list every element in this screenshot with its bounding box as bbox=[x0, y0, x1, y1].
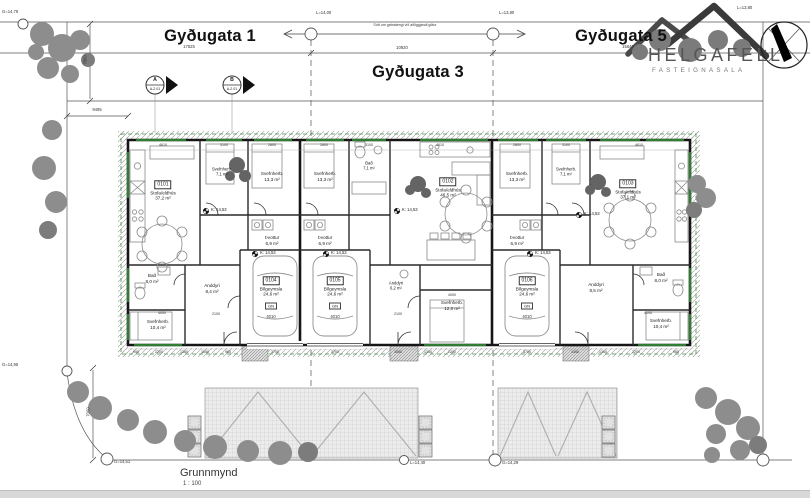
floor-plan-sheet: Gyðugata 1 Gyðugata 3 Gyðugata 5 17525 1… bbox=[0, 0, 810, 498]
level-u3: K: 14,53 bbox=[584, 212, 600, 217]
plan-title: Grunnmynd bbox=[180, 467, 237, 479]
tree-top-left bbox=[28, 22, 95, 83]
room-u1-entry: Anddyri8,4 m² bbox=[204, 283, 220, 295]
marker-bottom1: G=14,51 bbox=[114, 460, 130, 465]
logo-fasteignasala: FASTEIGNASALA bbox=[652, 68, 745, 75]
dim-bottom-8: 1360 bbox=[424, 351, 432, 355]
marker-top-left: G=14,79 bbox=[2, 10, 18, 15]
marker-bottom3: G=14,29 bbox=[502, 461, 518, 466]
dim-top-7: 3100 bbox=[562, 144, 570, 148]
street-title-gydugata-5: Gyðugata 5 bbox=[575, 27, 667, 45]
dim-bottom-0: 950 bbox=[133, 351, 139, 355]
garage-3-door-dim: 4010 bbox=[522, 315, 531, 320]
dim-bottom-10: 3700 bbox=[523, 351, 531, 355]
marker-top-right: L=13,80 bbox=[737, 6, 752, 11]
level-u1: K: 14,53 bbox=[211, 208, 227, 213]
logo-helgafell: HELGAFELL bbox=[648, 46, 784, 66]
dim-top-5: 4610 bbox=[436, 144, 444, 148]
dim-room-2: 2100 bbox=[394, 313, 402, 317]
garage-2-gn: GN bbox=[329, 303, 341, 310]
garage-3-gn: GN bbox=[521, 303, 533, 310]
dim-top-8: 4610 bbox=[635, 144, 643, 148]
room-u3-entry: Anddyri8,5 m² bbox=[588, 282, 604, 294]
garage-2-label: 0105 Bílgeymsla24,6 m² bbox=[324, 276, 346, 297]
dim-bottom-7: 1650 bbox=[394, 351, 402, 355]
marker-street1: L=14,00 bbox=[316, 11, 331, 16]
section-a-letter: A bbox=[153, 78, 157, 84]
room-u3-bed-large: Svefnherb.13,3 m² bbox=[506, 171, 528, 183]
garage-3-label: 0106 Bílgeymsla24,6 m² bbox=[516, 276, 538, 297]
dim-top-1: 3100 bbox=[220, 144, 228, 148]
room-u1-living: 0101 Stofa/eldhús37,2 m² bbox=[150, 180, 176, 201]
dim-top-6: 2800 bbox=[513, 144, 521, 148]
dim-top-2: 2800 bbox=[268, 144, 276, 148]
dim-room-3: 4000 bbox=[448, 294, 456, 298]
street-title-gydugata-3: Gyðugata 3 bbox=[372, 63, 464, 81]
room-u1-bed-small: Svefnherb.7,1 m² bbox=[212, 167, 232, 178]
street3-dim: 10920 bbox=[396, 46, 408, 51]
driveways bbox=[205, 388, 617, 458]
room-u2-laundry: Þvottur6,9 m² bbox=[318, 235, 333, 247]
room-u1-bed-lower: Svefnherb.10,4 m² bbox=[147, 319, 169, 331]
dim-top-0: 4610 bbox=[159, 144, 167, 148]
dim-bottom-6: 3700 bbox=[331, 351, 339, 355]
dim-bottom-1: 2200 bbox=[155, 351, 163, 355]
marker-left: G=14,95 bbox=[2, 363, 18, 368]
garage-2-door-dim: 4010 bbox=[330, 315, 339, 320]
room-u1-bath: Bað8,0 m² bbox=[145, 273, 158, 285]
section-a-sheet: A-2.01 bbox=[150, 88, 161, 92]
section-b-letter: B bbox=[230, 78, 234, 84]
tree-left-mid bbox=[32, 120, 67, 239]
dim-bottom-12: 1360 bbox=[599, 351, 607, 355]
room-u1-bed-large: Svefnherb.13,3 m² bbox=[261, 171, 283, 183]
section-markers bbox=[146, 76, 255, 133]
garage-1-door-dim: 4010 bbox=[266, 315, 275, 320]
room-u3-bed-small: Svefnherb.7,1 m² bbox=[556, 167, 576, 178]
site-dim-7800: 7800 bbox=[84, 55, 89, 64]
unit2-id-badge: 0102 bbox=[439, 177, 456, 186]
level-u2: K: 14,53 bbox=[402, 208, 418, 213]
room-u2-bed-large: Svefnherb.13,3 m² bbox=[314, 171, 336, 183]
marker-bottom2: L=14,40 bbox=[410, 461, 425, 466]
plan-scale: 1 : 100 bbox=[183, 481, 201, 488]
level-g2: K: 14,53 bbox=[331, 251, 347, 256]
room-u3-living: 0103 Stofa/eldhús37,1 m² bbox=[615, 179, 641, 200]
dim-bottom-13: 2200 bbox=[632, 351, 640, 355]
dim-room-0: 4000 bbox=[158, 312, 166, 316]
dim-top-3: 2800 bbox=[320, 144, 328, 148]
dim-bottom-5: 3700 bbox=[271, 351, 279, 355]
dim-bottom-9: 2200 bbox=[448, 351, 456, 355]
unit3-id-badge: 0103 bbox=[619, 179, 636, 188]
section-b-sheet: A-2.01 bbox=[227, 88, 238, 92]
level-g1: K: 14,53 bbox=[260, 251, 276, 256]
room-u3-laundry: Þvottur6,9 m² bbox=[510, 235, 525, 247]
bottom-strip bbox=[0, 491, 810, 498]
dim-bottom-2: 1360 bbox=[180, 351, 188, 355]
room-u2-bed-lower: Svefnherb.12,0 m² bbox=[441, 300, 463, 312]
room-u3-bath: Bað8,0 m² bbox=[654, 272, 667, 284]
level-g3: K: 14,53 bbox=[535, 251, 551, 256]
street5-dim: 15640 bbox=[622, 45, 634, 50]
dim-room-1: 2100 bbox=[212, 313, 220, 317]
site-dim-9495: 9495 bbox=[92, 108, 101, 113]
dim-bottom-11: 1450 bbox=[571, 351, 579, 355]
dim-bottom-14: 950 bbox=[673, 351, 679, 355]
site-dim-7000: 7000 bbox=[87, 407, 92, 416]
street-note: Sótt um gatnatengi við aðliggjandi götur bbox=[373, 24, 436, 28]
room-u2-entry: Anddyri6,2 m² bbox=[389, 281, 403, 292]
street-title-gydugata-1: Gyðugata 1 bbox=[164, 27, 256, 45]
street1-dim: 17525 bbox=[183, 45, 195, 50]
dim-top-4: 3100 bbox=[365, 144, 373, 148]
garage-1-label: 0104 Bílgeymsla24,6 m² bbox=[260, 276, 282, 297]
room-u2-living: 0102 Stofa/eldhús46,5 m² bbox=[435, 177, 461, 198]
dim-bottom-4: 960 bbox=[225, 351, 231, 355]
garage-1-gn: GN bbox=[265, 303, 277, 310]
marker-street2: L=13,80 bbox=[499, 11, 514, 16]
unit1-id-badge: 0101 bbox=[154, 180, 171, 189]
dim-room-4: 4000 bbox=[644, 312, 652, 316]
room-u2-bath: Bað7,1 m² bbox=[363, 161, 375, 172]
dim-bottom-3: 1650 bbox=[201, 351, 209, 355]
room-u3-bed-lower: Svefnherb.10,4 m² bbox=[650, 318, 672, 330]
trees-bottom-right bbox=[695, 387, 767, 463]
room-u1-laundry: Þvottur6,9 m² bbox=[265, 235, 280, 247]
